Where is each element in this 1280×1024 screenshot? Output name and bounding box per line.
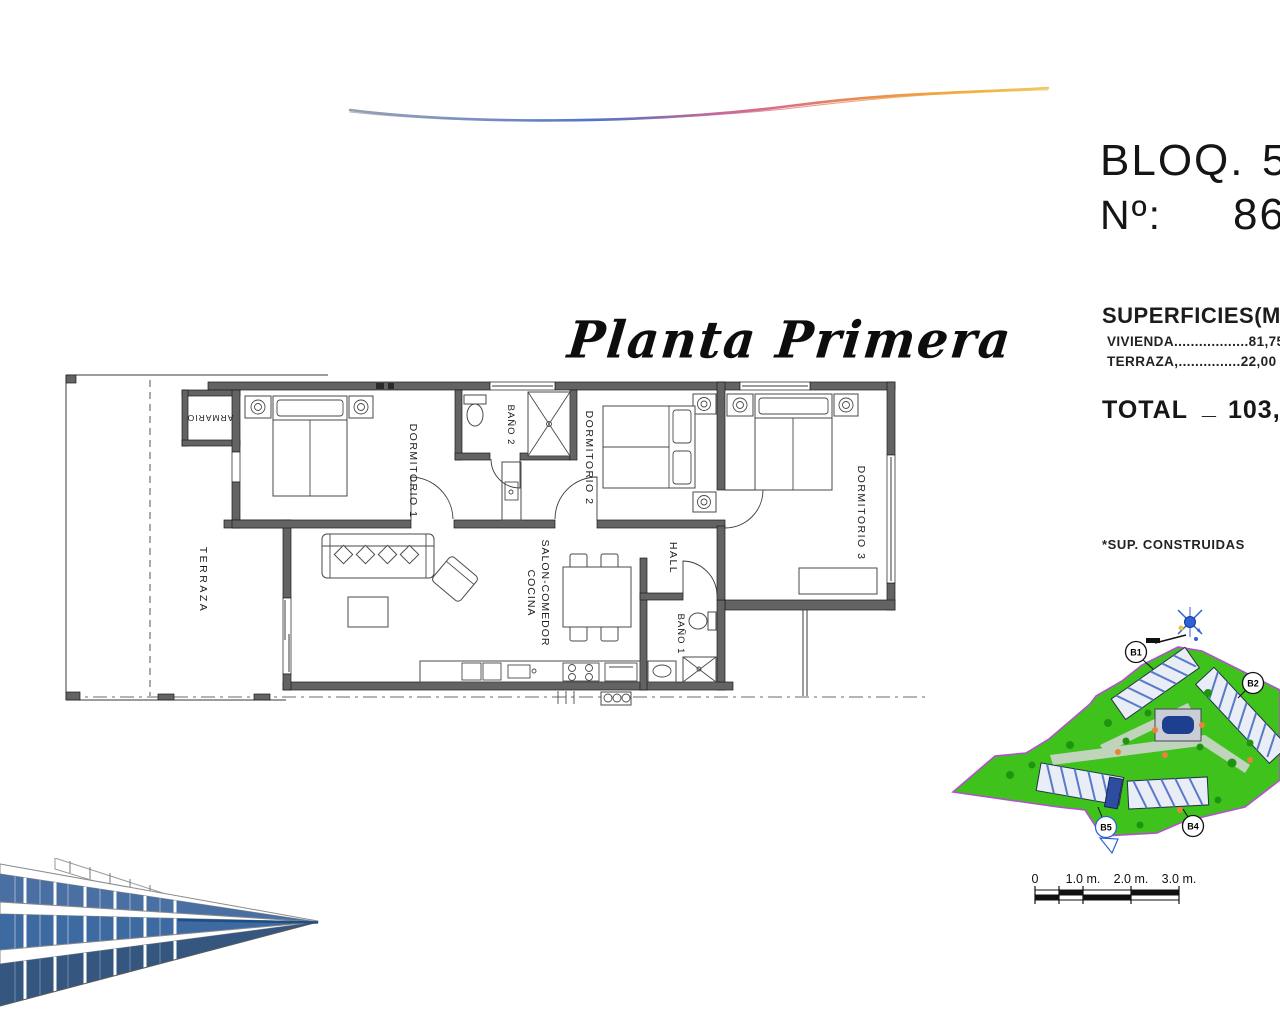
label-hall: HALL [667, 542, 679, 574]
door-bano-1 [683, 561, 717, 596]
scale-tick-3: 3.0 m. [1162, 872, 1197, 886]
door-dormitorio-3 [725, 490, 763, 528]
floor-title: Planta Primera [565, 310, 1015, 370]
label-dormitorio-2: DORMITORIO 2 [583, 411, 595, 506]
sliding-door-terraza [283, 598, 291, 674]
scale-tick-2: 2.0 m. [1114, 872, 1149, 886]
site-label-b2: B2 [1247, 679, 1259, 689]
total-label: TOTAL [1102, 396, 1188, 425]
surface-row-terraza: TERRAZA,...............22,00 [1107, 354, 1277, 369]
label-salon-line2: COCINA [525, 570, 537, 617]
scale-tick-0: 0 [1032, 872, 1039, 886]
building-b4 [1127, 777, 1208, 809]
block-number: 5 [1262, 136, 1280, 186]
label-salon-line1: SALON-COMEDOR [539, 540, 551, 647]
site-marker [1146, 635, 1186, 643]
label-terraza: TERRAZA [197, 547, 209, 614]
furniture-bano-2 [464, 392, 570, 456]
brand-swoosh [340, 68, 1060, 128]
surfaces-heading: SUPERFICIES(M2 [1102, 303, 1280, 329]
building-render [0, 858, 320, 1024]
scale-bar: 0 1.0 m. 2.0 m. 3.0 m. [1025, 870, 1225, 920]
furniture-dormitorio-2 [603, 394, 716, 512]
site-label-b1: B1 [1130, 648, 1142, 658]
total-value: 103,75 [1228, 396, 1280, 425]
furniture-kitchen [420, 661, 640, 682]
block-label: BLOQ. [1100, 136, 1245, 186]
window-dorm1 [232, 452, 240, 482]
wall-fixture [388, 383, 394, 389]
furniture-dormitorio-1 [245, 396, 373, 496]
label-dormitorio-1: DORMITORIO 1 [407, 424, 419, 519]
brochure-page: BLOQ. 5 Nº: 86 SUPERFICIES(M2 VIVIENDA..… [0, 0, 1280, 1024]
entry-steps [558, 691, 631, 705]
total-separator: _ [1202, 392, 1217, 421]
floor-plan: TERRAZA ARMARIO DORMITORIO 1 BAÑO 2 DORM… [58, 368, 963, 718]
furniture-salon [322, 534, 631, 641]
label-armario: ARMARIO [187, 413, 234, 423]
label-dormitorio-3: DORMITORIO 3 [855, 466, 867, 561]
label-bano-2: BAÑO 2 [505, 405, 516, 446]
surfaces-footnote: *SUP. CONSTRUIDAS [1102, 537, 1245, 552]
wall-fixture [376, 383, 384, 389]
label-bano-1: BAÑO 1 [675, 614, 686, 655]
site-pool [1155, 709, 1201, 741]
surface-row-vivienda: VIVIENDA..................81,75* [1107, 334, 1280, 349]
furniture-dormitorio-3 [727, 394, 877, 594]
unit-number-label: Nº: [1100, 192, 1162, 239]
swoosh-stroke-secondary [350, 90, 1048, 121]
site-label-b4: B4 [1187, 822, 1199, 832]
site-plan: B1 B2 B4 B5 [950, 595, 1280, 865]
scale-tick-1: 1.0 m. [1066, 872, 1101, 886]
site-label-b5: B5 [1100, 823, 1112, 833]
scale-bar-segments [1035, 886, 1179, 904]
unit-number-value: 86 [1233, 190, 1280, 240]
